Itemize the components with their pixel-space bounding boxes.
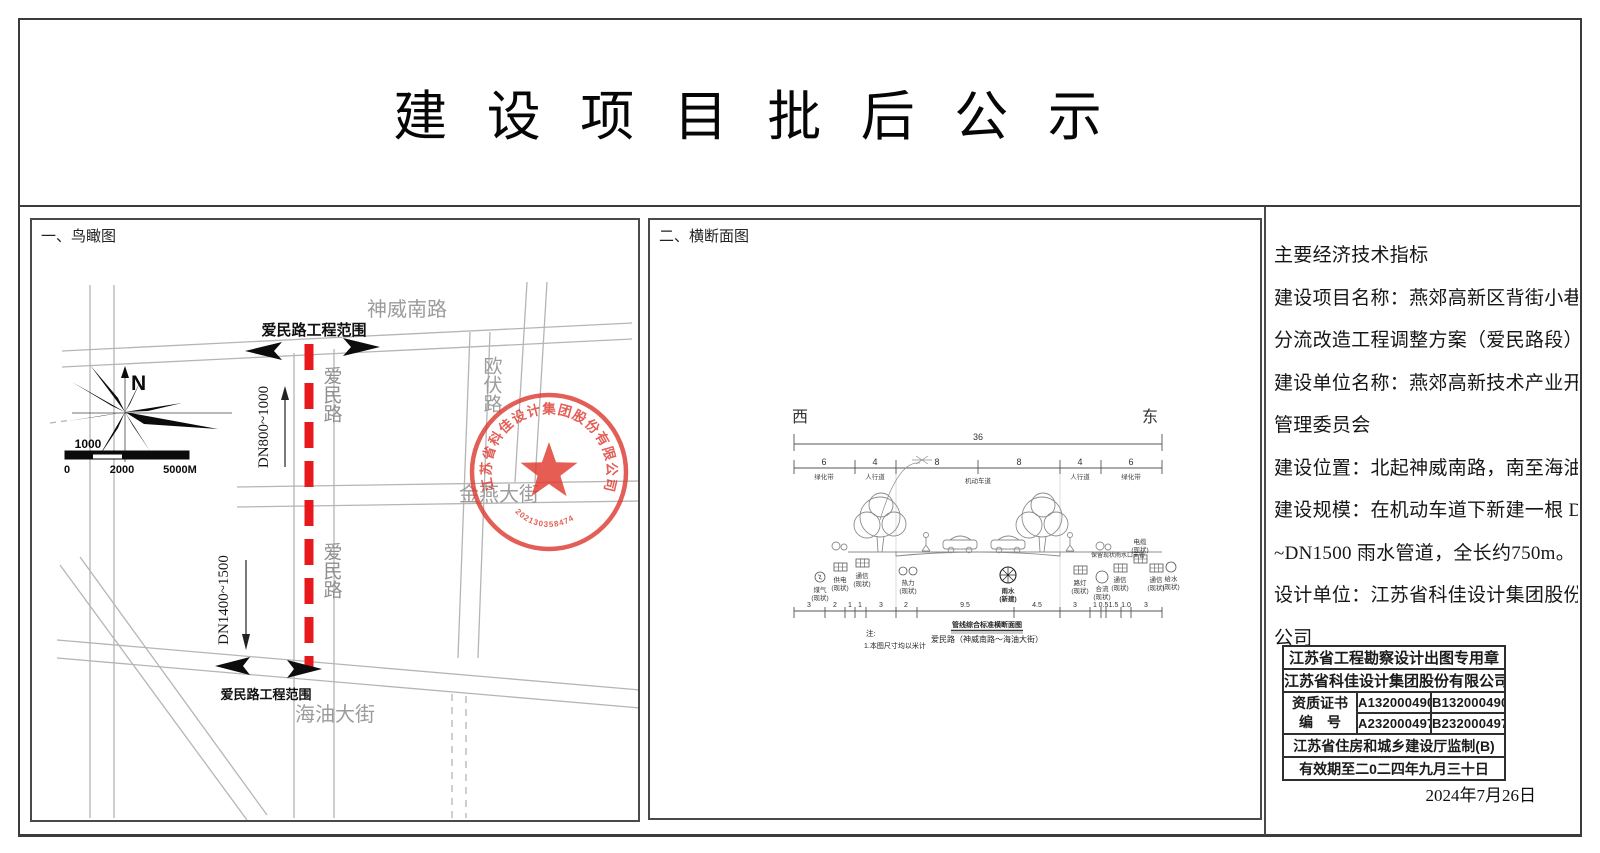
indicator-line: 建设位置：北起神威南路，南至海油大街 (1274, 448, 1578, 491)
total-dimension-value: 36 (973, 432, 983, 442)
scope-label-bottom: 爱民路工程范围 (220, 687, 311, 702)
svg-text:给水: 给水 (1165, 574, 1179, 583)
svg-text:热力: 热力 (902, 578, 915, 587)
scale-label-5000: 5000M (163, 464, 197, 476)
drawing-caption: 管线综合标准横断面图 爱民路（神威南路～海油大街） (931, 620, 1043, 644)
utility-heat: 热力 (现状) (899, 567, 917, 595)
svg-text:雨水: 雨水 (1002, 586, 1016, 595)
south-flow-arrow-icon (242, 634, 250, 650)
seg-label-greenbelt-e: 绿化带 (1121, 472, 1141, 481)
svg-text:(现状): (现状) (853, 579, 870, 588)
compass-north-label: N (131, 372, 146, 395)
west-label: 西 (792, 409, 808, 426)
utility-annotations: 煤气 (现状) 供电 (现状) 通信 (现状) 热力 (现状) (811, 537, 1179, 603)
svg-text:(现状): (现状) (1111, 583, 1128, 592)
cert-label-line1: 资质证书 (1284, 694, 1356, 713)
utility-gas: 煤气 (现状) (811, 572, 828, 602)
svg-text:(现状): (现状) (899, 586, 916, 595)
pipe-annotations: DN800~1000 DN1400~1500 (216, 386, 289, 650)
birdseye-heading: 一、鸟瞰图 (41, 225, 116, 246)
svg-text:通信: 通信 (1114, 575, 1128, 584)
svg-text:通信: 通信 (1150, 575, 1164, 584)
seal-number-text: 202130358474 (513, 507, 575, 529)
svg-text:8: 8 (934, 457, 939, 467)
indicator-line: 主要经济技术指标 (1274, 235, 1578, 278)
cross-section-heading: 二、横断面图 (659, 225, 749, 246)
svg-text:0.5: 0.5 (1099, 602, 1109, 609)
stamp-cert-a1: A132000490 (1357, 692, 1431, 713)
svg-text:202130358474: 202130358474 (513, 507, 575, 529)
road-name-labels: 神威南路 欧伏路 爱民路 爱民路 金燕大街 海油大街 (295, 298, 539, 726)
map-scale-bar: 1000 0 2000 5000M (64, 437, 197, 476)
svg-text:1: 1 (858, 602, 862, 609)
road-label-aiminlu-south: 爱民路 (321, 542, 343, 599)
scale-label-0: 0 (64, 464, 70, 476)
cert-label-line2: 编 号 (1284, 713, 1356, 732)
indicator-line: 建设项目名称：燕郊高新区背街小巷雨污 (1274, 278, 1578, 321)
seg-label-greenbelt-w: 绿化带 (814, 472, 834, 481)
svg-text:合流: 合流 (1096, 584, 1110, 593)
company-seal: 江苏省科佳设计集团股份有限公司 202130358474 (472, 395, 626, 549)
svg-text:4.5: 4.5 (1032, 602, 1042, 609)
north-flow-arrow-icon (281, 386, 289, 400)
utility-streetlight: 路灯 (现状) (1071, 566, 1088, 595)
svg-text:3: 3 (807, 602, 811, 609)
utility-water-supply: 给水 (现状) (1162, 562, 1179, 591)
car-icon (991, 536, 1025, 553)
scope-arrow-icons (215, 338, 380, 678)
indicator-line: 管理委员会 (1274, 405, 1578, 448)
road-label-jinyandajie: 金燕大街 (459, 483, 539, 506)
stamp-cert-label: 资质证书 编 号 (1283, 692, 1357, 734)
svg-text:路灯: 路灯 (1074, 578, 1088, 587)
utility-cable: 电缆 (现状) (1131, 537, 1148, 563)
road-label-oufulu: 欧伏路 (481, 356, 503, 413)
stamp-cert-b2: B232000497 (1431, 713, 1505, 734)
indicator-line: ~DN1500 雨水管道，全长约750m。 (1274, 533, 1578, 576)
road-label-shenweinanlu: 神威南路 (367, 298, 447, 321)
svg-text:通信: 通信 (856, 571, 870, 580)
svg-text:1.0: 1.0 (1121, 602, 1131, 609)
stamp-row-supervision: 江苏省住房和城乡建设厅监制(B) (1283, 734, 1505, 757)
birdseye-map: 神威南路 欧伏路 爱民路 爱民路 金燕大街 海油大街 爱民路工程范围 爱民路工程… (32, 220, 638, 820)
svg-text:(新建): (新建) (999, 594, 1016, 603)
segment-dimension-values: 6 4 8 8 4 6 (821, 457, 1133, 467)
svg-text:(现状): (现状) (811, 593, 828, 602)
seg-label-sidewalk-e: 人行道 (1070, 472, 1090, 481)
scope-label-top: 爱民路工程范围 (261, 321, 366, 339)
stamp-row-title: 江苏省工程勘察设计出图专用章 (1283, 646, 1505, 669)
construction-notice-sheet: { "title": "建 设 项 目 批 后 公 示", "left_pane… (0, 0, 1600, 853)
svg-text:4: 4 (872, 457, 877, 467)
svg-text:2: 2 (833, 602, 837, 609)
pipe-label-dn1400-1500: DN1400~1500 (216, 555, 232, 645)
indicator-line: 设计单位：江苏省科佳设计集团股份有限 (1274, 575, 1578, 618)
design-license-stamp: 江苏省工程勘察设计出图专用章 江苏省科佳设计集团股份有限公司 资质证书 编 号 … (1282, 645, 1506, 781)
title-section: 建 设 项 目 批 后 公 示 (18, 18, 1580, 207)
pipe-label-dn800-1000: DN800~1000 (256, 386, 272, 468)
keep-existing-note: 保留现状雨水口支管 (1091, 551, 1145, 559)
svg-text:3: 3 (1144, 602, 1148, 609)
caption-title: 管线综合标准横断面图 (952, 620, 1022, 629)
page-title: 建 设 项 目 批 后 公 示 (393, 72, 1115, 151)
svg-text:3: 3 (1073, 602, 1077, 609)
indicators-text: 主要经济技术指标 建设项目名称：燕郊高新区背街小巷雨污 分流改造工程调整方案（爱… (1274, 235, 1578, 660)
svg-text:1.5: 1.5 (1109, 602, 1119, 609)
indicator-line: 建设规模：在机动车道下新建一根 DN800 (1274, 490, 1578, 533)
svg-text:(现状): (现状) (1093, 592, 1110, 601)
scale-label-1000: 1000 (75, 437, 102, 451)
stamp-cert-a2: A232000497 (1357, 713, 1431, 734)
utility-power: 供电 (现状) (831, 563, 848, 592)
note-line-1: 1.本图尺寸均以米计 (864, 641, 926, 650)
caption-subtitle: 爱民路（神威南路～海油大街） (931, 634, 1043, 644)
stamp-row-validity: 有效期至二0二四年九月三十日 (1283, 757, 1505, 780)
indicator-line: 分流改造工程调整方案（爱民路段） (1274, 320, 1578, 363)
seg-label-sidewalk-w: 人行道 (865, 472, 885, 481)
street-scene (832, 456, 1162, 556)
scale-label-2000: 2000 (110, 464, 134, 476)
svg-text:供电: 供电 (834, 575, 848, 584)
utility-combined-sewer: 合流 (现状) (1093, 571, 1110, 601)
birdseye-panel: 一、鸟瞰图 神威南路 欧伏路 爱民路 爱民路 (30, 218, 640, 822)
utility-stormwater-new: 雨水 (新建) (999, 567, 1016, 603)
svg-text:1: 1 (1093, 602, 1097, 609)
cross-section-drawing: 西 东 36 6 4 8 8 4 6 绿化带 人行道 (650, 220, 1260, 818)
stamp-cert-b1: B132000490 (1431, 692, 1505, 713)
svg-text:8: 8 (1016, 457, 1021, 467)
svg-text:6: 6 (821, 457, 826, 467)
svg-text:(现状): (现状) (831, 583, 848, 592)
car-icon (943, 536, 977, 553)
road-label-haiyoudajie: 海油大街 (295, 703, 375, 726)
seg-label-carriageway: 机动车道 (965, 476, 992, 485)
note-head: 注: (866, 628, 876, 638)
cross-section-panel: 二、横断面图 西 东 36 6 4 8 8 4 6 (648, 218, 1262, 820)
svg-text:(现状): (现状) (1071, 586, 1088, 595)
spacing-dimension-values: 3 2 1 1 3 2 9.5 4.5 3 1 0.5 1.5 1.0 3 (807, 602, 1148, 609)
drawing-note: 注: 1.本图尺寸均以米计 (864, 628, 926, 650)
svg-text:6: 6 (1128, 457, 1133, 467)
svg-text:4: 4 (1077, 457, 1082, 467)
svg-text:(现状): (现状) (1162, 582, 1179, 591)
east-label: 东 (1142, 408, 1158, 426)
road-label-aiminlu-north: 爱民路 (321, 366, 343, 423)
svg-text:煤气: 煤气 (814, 585, 828, 594)
svg-text:电缆: 电缆 (1134, 537, 1148, 546)
indicator-line: 建设单位名称：燕郊高新技术产业开发区 (1274, 363, 1578, 406)
svg-text:3: 3 (879, 602, 883, 609)
svg-text:9.5: 9.5 (960, 602, 970, 609)
indicators-panel: 主要经济技术指标 建设项目名称：燕郊高新区背街小巷雨污 分流改造工程调整方案（爱… (1266, 207, 1582, 835)
publish-date: 2024年7月26日 (1426, 781, 1537, 806)
utility-telecom-1: 通信 (现状) (853, 559, 870, 588)
stamp-row-company: 江苏省科佳设计集团股份有限公司 (1283, 669, 1505, 692)
utility-telecom-2: 通信 (现状) (1111, 564, 1128, 592)
svg-text:2: 2 (904, 602, 908, 609)
svg-text:1: 1 (848, 602, 852, 609)
